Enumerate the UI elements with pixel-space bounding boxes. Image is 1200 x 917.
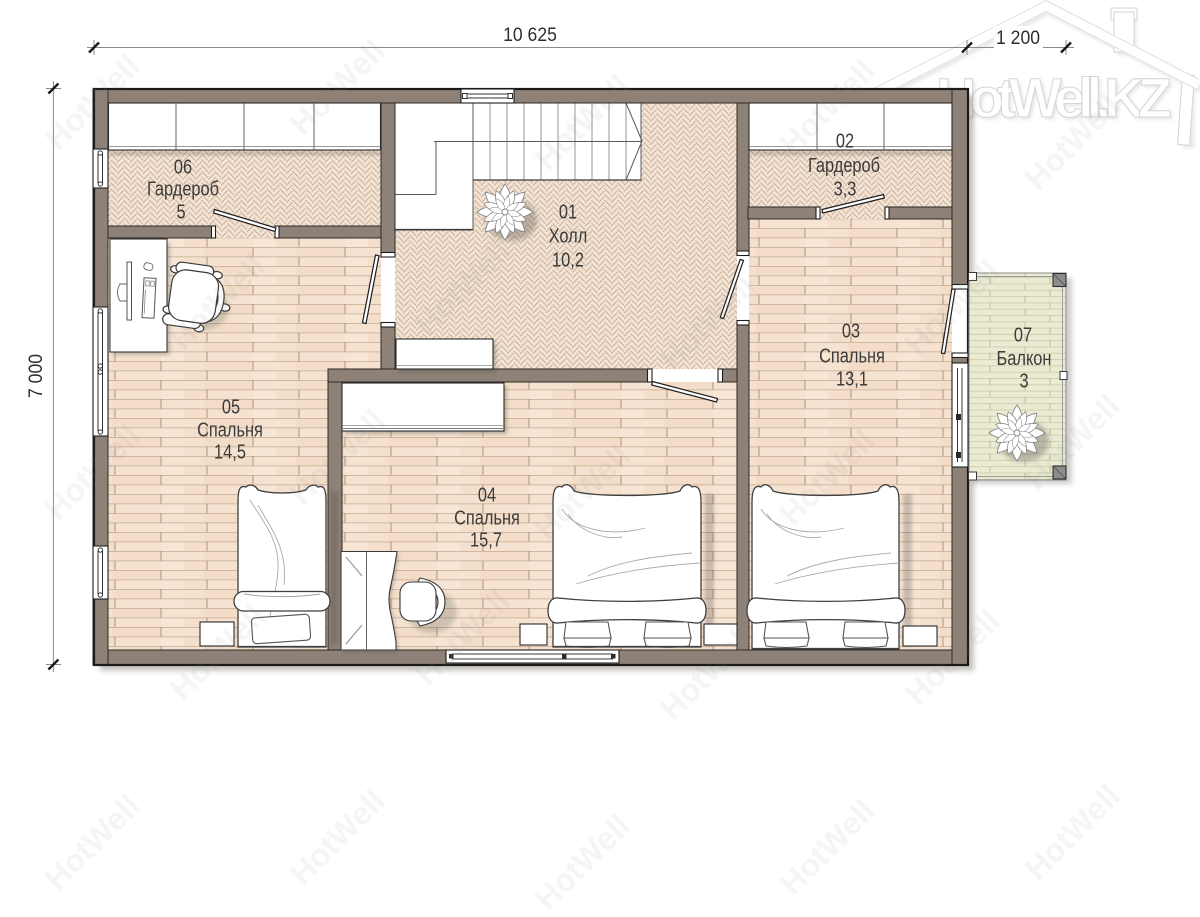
svg-text:Спальня: Спальня — [454, 506, 520, 529]
svg-text:1 200: 1 200 — [996, 26, 1040, 48]
svg-text:3: 3 — [1019, 369, 1028, 392]
svg-text:07: 07 — [1014, 323, 1032, 346]
svg-text:3,3: 3,3 — [834, 177, 857, 200]
svg-text:Гардероб: Гардероб — [808, 153, 880, 176]
svg-text:13,1: 13,1 — [836, 367, 868, 390]
svg-text:Холл: Холл — [549, 224, 588, 247]
svg-text:7 000: 7 000 — [24, 354, 46, 398]
svg-text:Балкон: Балкон — [997, 346, 1052, 369]
svg-text:Гардероб: Гардероб — [147, 177, 219, 200]
svg-text:5: 5 — [176, 200, 185, 223]
svg-text:10 625: 10 625 — [503, 23, 557, 45]
svg-text:10,2: 10,2 — [552, 248, 584, 271]
svg-text:15,7: 15,7 — [470, 528, 502, 551]
svg-text:Спальня: Спальня — [819, 344, 885, 367]
svg-text:Спальня: Спальня — [197, 418, 263, 441]
svg-text:05: 05 — [222, 395, 240, 418]
svg-text:01: 01 — [559, 200, 577, 223]
svg-text:03: 03 — [842, 319, 860, 342]
svg-text:14,5: 14,5 — [214, 440, 246, 463]
svg-text:02: 02 — [836, 129, 854, 152]
svg-text:04: 04 — [478, 483, 496, 506]
svg-text:06: 06 — [174, 155, 192, 178]
